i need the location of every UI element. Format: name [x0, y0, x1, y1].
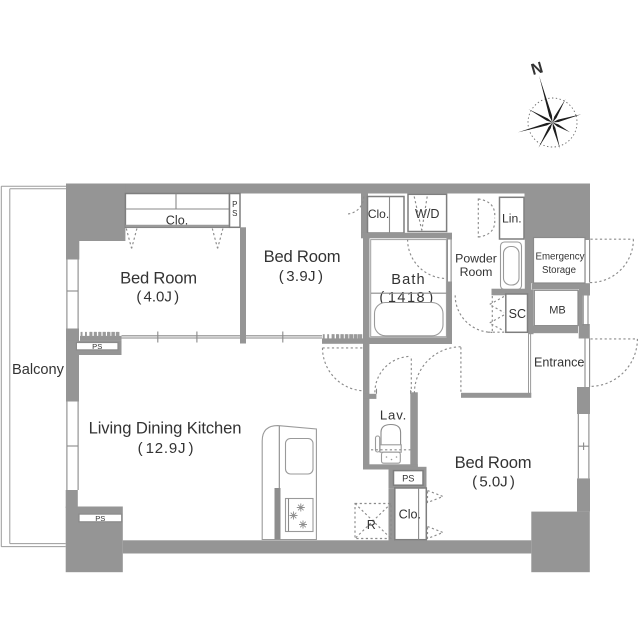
svg-text:R: R [367, 518, 376, 532]
svg-text:Bed Room: Bed Room [455, 453, 532, 472]
svg-text:(12.9J): (12.9J) [138, 440, 195, 457]
svg-text:W/D: W/D [415, 207, 439, 221]
svg-text:PS: PS [402, 474, 414, 484]
svg-text:PS: PS [92, 342, 102, 351]
svg-text:Powder: Powder [455, 251, 497, 265]
svg-text:MB: MB [549, 305, 566, 317]
svg-text:Lin.: Lin. [502, 211, 522, 225]
svg-text:Storage: Storage [542, 265, 576, 276]
svg-text:PS: PS [95, 514, 105, 523]
svg-text:Entrance: Entrance [534, 356, 584, 370]
svg-text:Bed Room: Bed Room [120, 269, 197, 288]
svg-text:Clo.: Clo. [399, 507, 421, 521]
svg-text:Balcony: Balcony [12, 362, 65, 378]
svg-text:Bed Room: Bed Room [264, 247, 341, 266]
svg-text:Clo.: Clo. [166, 213, 188, 227]
svg-text:S: S [232, 209, 237, 218]
svg-text:Room: Room [460, 265, 493, 279]
svg-text:Emergency: Emergency [536, 251, 585, 262]
svg-text:Lav.: Lav. [380, 407, 407, 422]
svg-text:Living Dining Kitchen: Living Dining Kitchen [89, 419, 242, 438]
svg-text:P: P [232, 200, 237, 209]
svg-text:Bath: Bath [391, 272, 425, 288]
svg-text:SC: SC [509, 307, 526, 321]
svg-text:Clo.: Clo. [368, 207, 389, 221]
